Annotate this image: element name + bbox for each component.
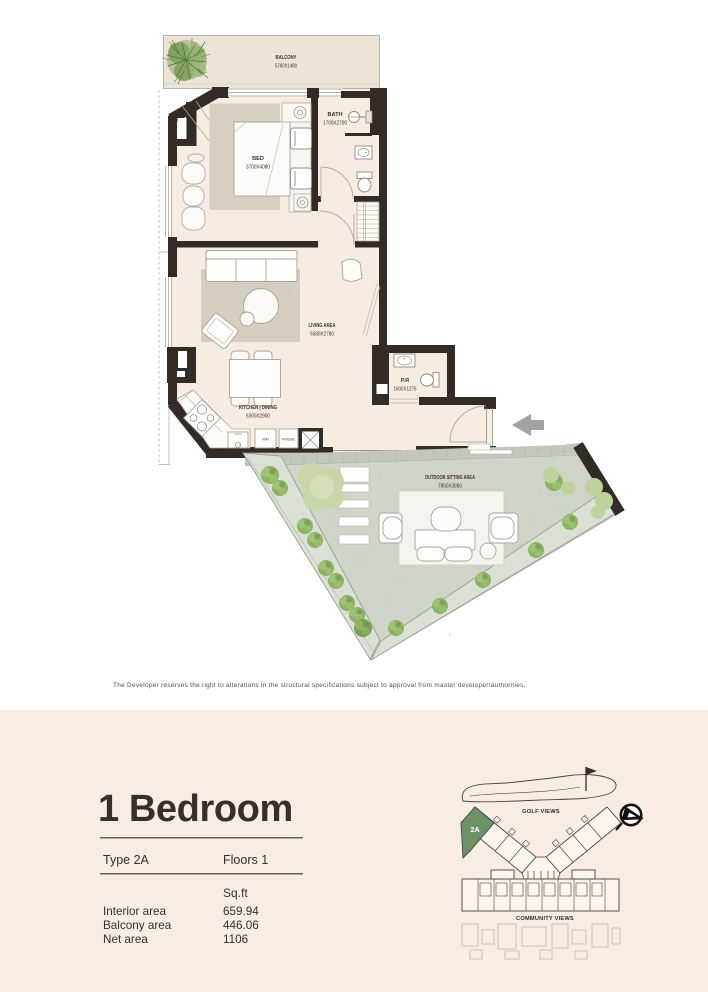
- svg-text:Type 2A: Type 2A: [103, 853, 150, 867]
- svg-text:BED: BED: [252, 156, 264, 162]
- svg-text:BALCONY: BALCONY: [276, 55, 297, 61]
- svg-text:Interior area: Interior area: [103, 905, 167, 918]
- svg-text:GOLF VIEWS: GOLF VIEWS: [522, 809, 560, 815]
- svg-text:659.94: 659.94: [223, 905, 259, 918]
- svg-text:1106: 1106: [223, 933, 248, 946]
- svg-text:446.06: 446.06: [223, 919, 259, 932]
- svg-text:1600X1275: 1600X1275: [394, 387, 417, 393]
- svg-text:2A: 2A: [470, 825, 480, 834]
- svg-text:7850X3880: 7850X3880: [438, 484, 462, 490]
- svg-text:BATH: BATH: [327, 112, 342, 118]
- svg-text:WM: WM: [262, 438, 268, 442]
- svg-text:Floors 1: Floors 1: [223, 853, 268, 867]
- svg-text:5760X1480: 5760X1480: [275, 64, 297, 70]
- svg-text:1700X2700: 1700X2700: [323, 121, 347, 127]
- svg-text:5580X2780: 5580X2780: [310, 332, 334, 338]
- svg-text:COMMUNITY VIEWS: COMMUNITY VIEWS: [516, 916, 574, 922]
- svg-text:FRIDGE: FRIDGE: [282, 438, 295, 442]
- svg-text:Net area: Net area: [103, 933, 148, 946]
- svg-text:1 Bedroom: 1 Bedroom: [98, 788, 293, 830]
- svg-text:3700X4080: 3700X4080: [246, 165, 270, 171]
- svg-text:5300X2900: 5300X2900: [246, 414, 270, 420]
- svg-text:P.R: P.R: [401, 378, 410, 384]
- svg-text:Sq.ft: Sq.ft: [223, 886, 248, 900]
- svg-text:KITCHEN | DINING: KITCHEN | DINING: [239, 405, 277, 411]
- svg-text:The Developer reserves the rig: The Developer reserves the right to alte…: [113, 682, 526, 689]
- svg-text:Balcony area: Balcony area: [103, 919, 172, 932]
- svg-text:OUTDOOR SITTING AREA: OUTDOOR SITTING AREA: [425, 475, 475, 481]
- svg-text:LIVING AREA: LIVING AREA: [309, 323, 336, 329]
